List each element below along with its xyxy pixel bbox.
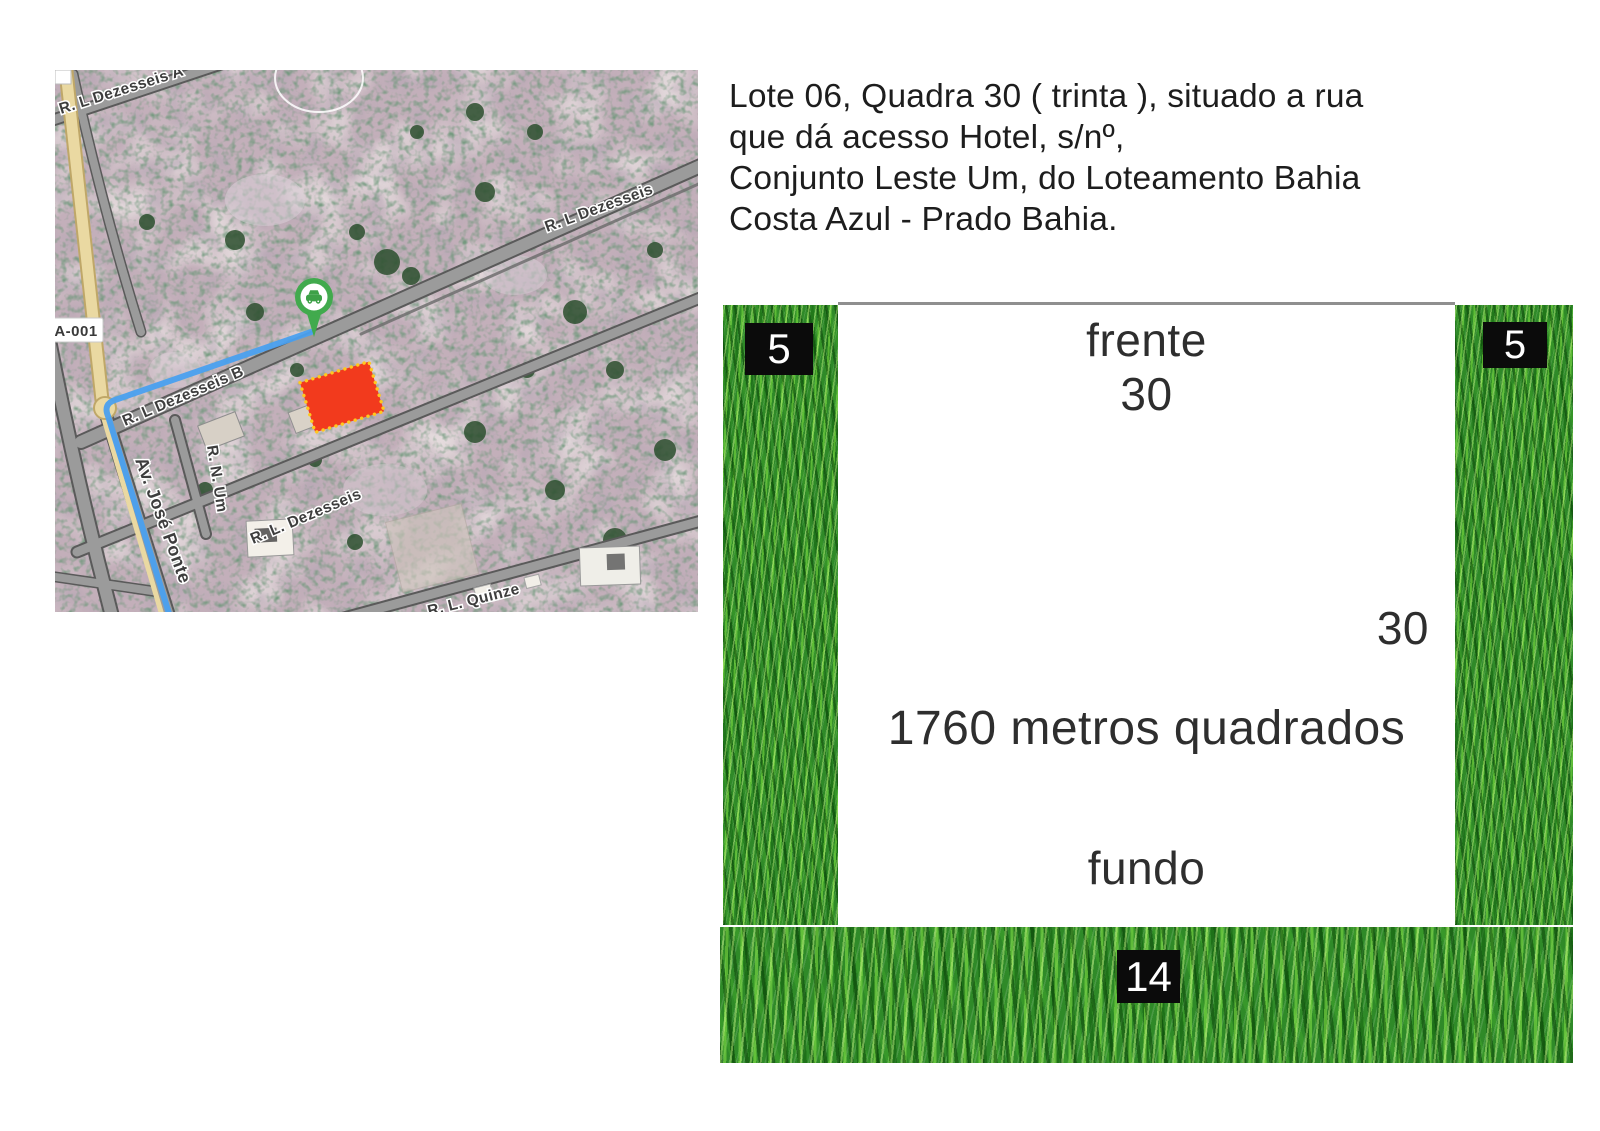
lot-area-box: frente 30 30 1760 metros quadrados fundo [838, 302, 1455, 925]
route-shield-label: BA-001 [55, 323, 98, 340]
grass-strip-right [1455, 305, 1573, 925]
satellite-map-canvas: R. L Dezesseis A R. L Dezesseis R. L Dez… [55, 70, 698, 612]
clipped-label-chip [55, 70, 71, 84]
front-dimension: 30 [838, 367, 1455, 421]
corner-marker-left: 5 [745, 323, 813, 375]
grass-strip-left [723, 305, 838, 925]
back-label: fundo [838, 841, 1455, 895]
area-text: 1760 metros quadrados [838, 701, 1455, 756]
satellite-map: R. L Dezesseis A R. L Dezesseis R. L Dez… [55, 70, 698, 612]
corner-marker-right: 5 [1483, 322, 1547, 368]
front-label: frente [838, 313, 1455, 367]
side-dimension: 30 [1377, 601, 1429, 655]
lot-diagram: frente 30 30 1760 metros quadrados fundo… [720, 300, 1573, 1063]
lot-description-text: Lote 06, Quadra 30 ( trinta ), situado a… [729, 76, 1429, 240]
bottom-marker: 14 [1117, 950, 1180, 1003]
route-shield-ba001: BA-001 [55, 318, 103, 342]
